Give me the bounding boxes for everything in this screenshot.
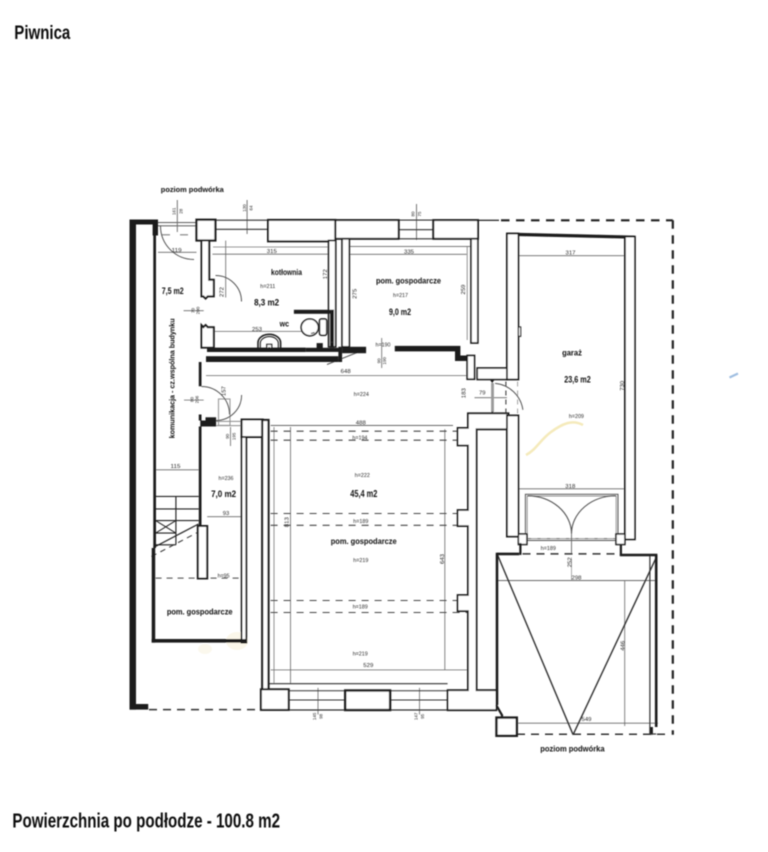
svg-text:90: 90 (225, 433, 230, 439)
svg-text:95: 95 (420, 713, 425, 719)
svg-text:h=194: h=194 (352, 436, 367, 442)
svg-text:298: 298 (572, 576, 582, 582)
svg-text:813: 813 (284, 517, 290, 527)
svg-text:79: 79 (479, 391, 486, 397)
svg-text:poziom podwórka: poziom podwórka (161, 185, 225, 194)
svg-text:28: 28 (179, 208, 184, 214)
svg-text:h=219: h=219 (353, 558, 368, 564)
svg-text:90: 90 (376, 358, 381, 364)
svg-text:9,0 m2: 9,0 m2 (389, 307, 411, 318)
svg-text:648: 648 (341, 369, 351, 375)
svg-text:190: 190 (382, 357, 387, 365)
svg-text:643: 643 (440, 554, 446, 564)
svg-text:h=217: h=217 (393, 293, 408, 299)
svg-text:157: 157 (221, 386, 227, 396)
svg-text:119: 119 (172, 248, 182, 254)
svg-text:253: 253 (252, 327, 262, 333)
svg-text:730: 730 (620, 381, 626, 391)
svg-text:93: 93 (223, 511, 230, 517)
svg-text:garaż: garaż (562, 348, 582, 358)
svg-text:317: 317 (566, 250, 576, 256)
svg-text:275: 275 (352, 289, 358, 299)
svg-text:poziom podwórka: poziom podwórka (540, 745, 605, 754)
svg-text:200: 200 (195, 306, 200, 314)
svg-text:206: 206 (194, 395, 199, 403)
svg-text:259: 259 (461, 284, 467, 294)
svg-text:115: 115 (171, 464, 181, 470)
svg-text:Powierzchnia po podłodze - 100: Powierzchnia po podłodze - 100.8 m2 (12, 809, 280, 832)
svg-text:195: 195 (231, 432, 236, 440)
svg-text:75: 75 (417, 211, 422, 217)
svg-text:h=189: h=189 (353, 605, 368, 611)
svg-text:252: 252 (568, 557, 574, 567)
svg-text:kotłownia: kotłownia (271, 267, 302, 277)
svg-text:h=211: h=211 (260, 284, 275, 290)
svg-text:h=190: h=190 (376, 342, 391, 348)
svg-text:549: 549 (582, 717, 592, 723)
svg-text:h=236: h=236 (219, 476, 234, 482)
svg-text:h=219: h=219 (353, 651, 368, 657)
svg-text:h=209: h=209 (569, 414, 584, 420)
svg-text:45,4 m2: 45,4 m2 (350, 489, 377, 500)
svg-text:98: 98 (319, 713, 324, 719)
svg-text:183: 183 (462, 388, 468, 398)
svg-text:488: 488 (356, 421, 366, 427)
svg-text:145: 145 (312, 712, 317, 720)
svg-text:7,0 m2: 7,0 m2 (211, 489, 236, 500)
svg-text:komunikacja - cz.wspólna budyn: komunikacja - cz.wspólna budynku (167, 318, 176, 438)
svg-text:h=222: h=222 (355, 473, 370, 479)
svg-text:7,5 m2: 7,5 m2 (162, 286, 184, 296)
svg-text:h=224: h=224 (354, 392, 369, 398)
svg-text:315: 315 (267, 249, 277, 255)
svg-text:wc: wc (279, 320, 290, 329)
svg-text:130: 130 (242, 204, 247, 212)
svg-text:161: 161 (172, 207, 177, 215)
svg-text:Piwnica: Piwnica (14, 23, 70, 44)
svg-text:147: 147 (414, 712, 419, 720)
svg-text:318: 318 (565, 484, 575, 490)
svg-text:pom. gospodarcze: pom. gospodarcze (376, 276, 441, 286)
svg-text:h=189: h=189 (353, 519, 368, 525)
svg-text:h=95: h=95 (218, 574, 230, 580)
svg-text:172: 172 (323, 269, 329, 279)
svg-text:446: 446 (620, 641, 626, 651)
svg-text:272: 272 (220, 287, 226, 297)
svg-text:529: 529 (363, 663, 373, 669)
svg-text:64: 64 (249, 205, 254, 211)
svg-text:23,6 m2: 23,6 m2 (564, 374, 590, 384)
svg-text:335: 335 (404, 249, 414, 255)
svg-text:80: 80 (410, 211, 415, 217)
svg-text:pom. gospodarcze: pom. gospodarcze (331, 536, 397, 546)
svg-text:pom. gospodarcze: pom. gospodarcze (167, 606, 233, 616)
svg-text:8,3 m2: 8,3 m2 (254, 298, 279, 309)
svg-text:h=189: h=189 (541, 546, 556, 552)
